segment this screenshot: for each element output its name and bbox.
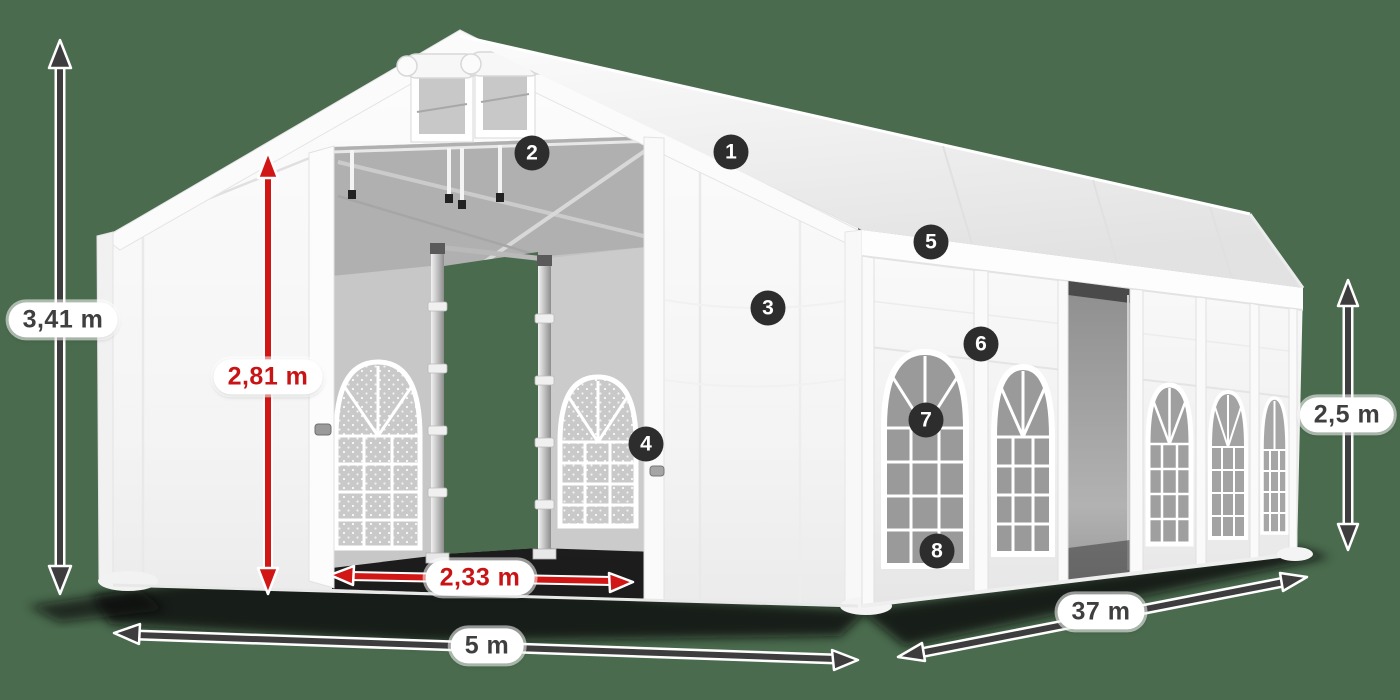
front-left-corner (97, 232, 113, 584)
entrance-frame-right (644, 137, 664, 601)
side-window-5 (1262, 398, 1287, 533)
tent-illustration (0, 0, 1400, 700)
callout-badge-4[interactable]: 4 (629, 427, 664, 462)
corner-skirt-left (98, 571, 158, 591)
side-window-4 (1210, 392, 1246, 538)
callout-badge-5[interactable]: 5 (914, 225, 949, 260)
door-handle[interactable] (315, 424, 331, 435)
entrance-passage (444, 252, 538, 554)
front-right-corner (845, 230, 862, 606)
callout-badge-8[interactable]: 8 (920, 534, 955, 569)
dimension-label-tent-length: 37 m (1058, 594, 1145, 629)
side-open-section (1068, 281, 1130, 581)
door-handle-right[interactable] (650, 466, 664, 476)
dimension-label-entrance-height: 2,81 m (214, 359, 323, 394)
dimension-label-tent-width: 5 m (451, 628, 524, 663)
dimension-label-side-height: 2,5 m (1300, 397, 1394, 432)
callout-badge-3[interactable]: 3 (751, 291, 786, 326)
tent-interior (332, 136, 656, 600)
callout-badge-1[interactable]: 1 (714, 135, 749, 170)
side-window-1 (884, 352, 966, 566)
corner-skirt-back (1277, 547, 1313, 561)
callout-badge-2[interactable]: 2 (515, 136, 550, 171)
tent-diagram: 3,41 m 2,81 m 2,33 m 5 m 37 m 2,5 m 1 2 … (0, 0, 1400, 700)
callout-badge-6[interactable]: 6 (964, 327, 999, 362)
side-window-3 (1148, 385, 1191, 544)
interior-right-window (560, 377, 636, 526)
dimension-label-entrance-width: 2,33 m (426, 560, 535, 595)
side-window-2 (994, 367, 1052, 554)
interior-left-window (336, 362, 420, 548)
callout-badge-7[interactable]: 7 (909, 403, 944, 438)
dimension-label-total-height: 3,41 m (9, 302, 118, 337)
